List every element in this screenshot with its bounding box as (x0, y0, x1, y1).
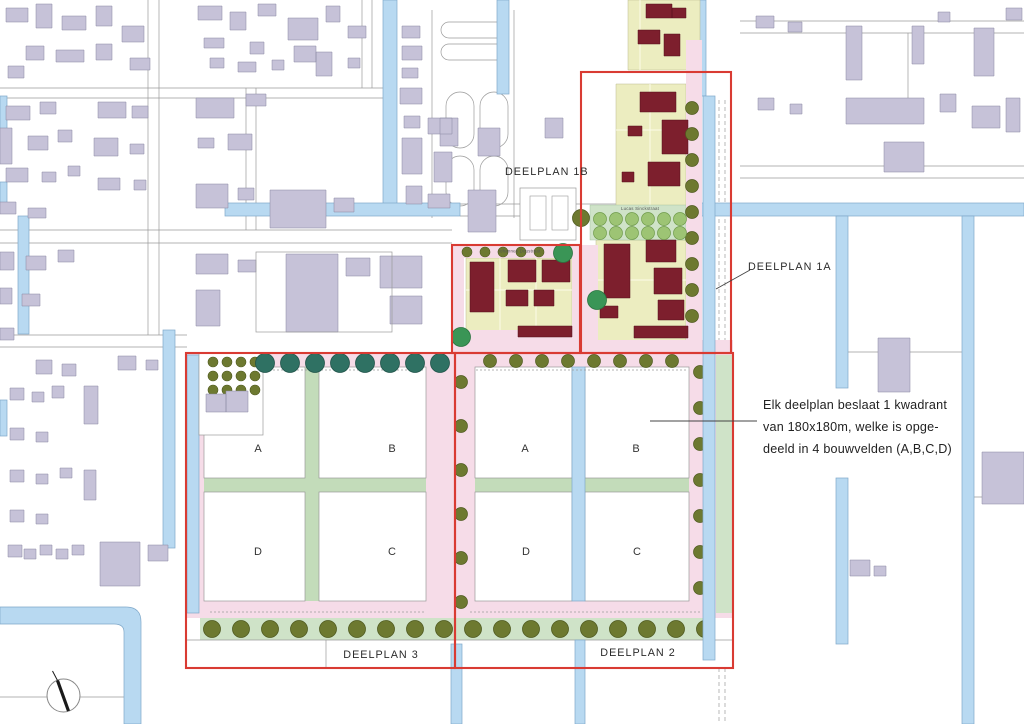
leader-deelplan-1a (716, 270, 750, 289)
quadrant-d3-b: B (388, 443, 395, 455)
label-deelplan-1b: DEELPLAN 1B (505, 166, 589, 178)
annotation-line-1: Elk deelplan beslaat 1 kwadrant (763, 398, 947, 412)
quadrant-d2-d: D (522, 546, 530, 558)
quadrant-canal (572, 367, 585, 601)
annotation-line-3: deeld in 4 bouwvelden (A,B,C,D) (763, 442, 952, 456)
label-deelplan-1a: DEELPLAN 1A (748, 261, 832, 273)
deelplan-2-3-block (187, 353, 733, 668)
street-label-lucas-sinckstraat: Lucas Sinckstraat (621, 206, 660, 211)
masterplan-svg: DEELPLAN 1B DEELPLAN 1A DEELPLAN 3 DEELP… (0, 0, 1024, 724)
masterplan-map: DEELPLAN 1B DEELPLAN 1A DEELPLAN 3 DEELP… (0, 0, 1024, 724)
north-arrow (47, 671, 80, 712)
north-arrow-tip (53, 671, 58, 681)
quadrant-d2-c: C (633, 546, 641, 558)
label-deelplan-3: DEELPLAN 3 (343, 649, 418, 661)
street-label-johannes-doustraat: Johannes Doustraat (498, 249, 541, 254)
deelplan-1a-1b-cluster (452, 0, 734, 354)
quadrant-d2-b: B (632, 443, 639, 455)
label-deelplan-2: DEELPLAN 2 (600, 647, 675, 659)
quadrant-d3-c: C (388, 546, 396, 558)
quadrant-d3-a: A (254, 443, 262, 455)
quadrant-d2-a: A (521, 443, 529, 455)
annotation-line-2: van 180x180m, welke is opge- (763, 420, 939, 434)
quadrant-d3-d: D (254, 546, 262, 558)
